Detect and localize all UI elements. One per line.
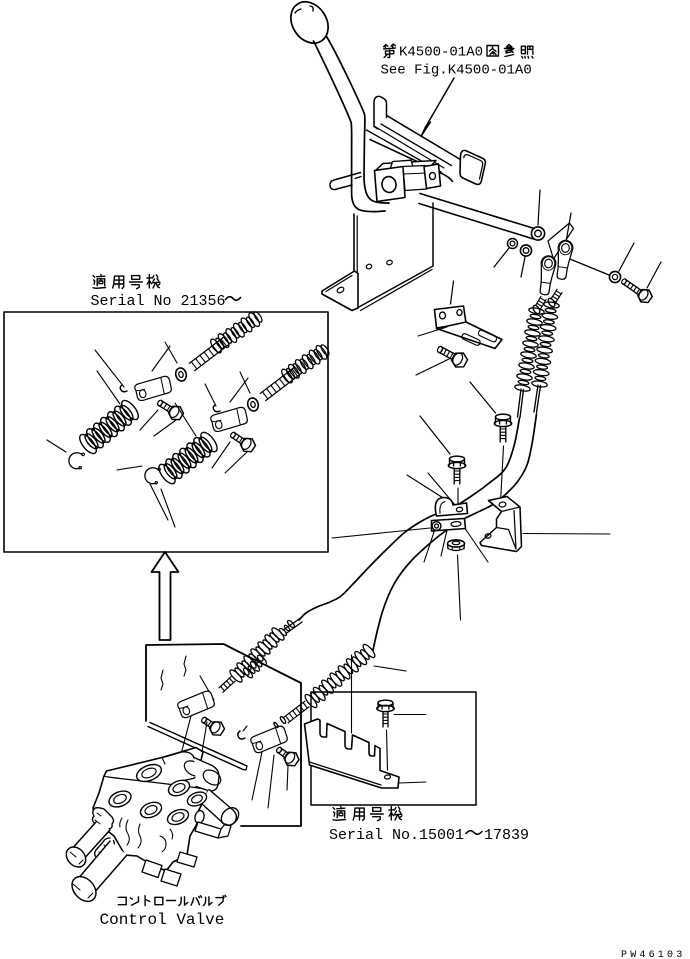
svg-text:K4500-01A0: K4500-01A0 [399, 45, 483, 61]
svg-text:PW46103: PW46103 [621, 950, 685, 959]
svg-text:Control Valve: Control Valve [100, 911, 225, 929]
svg-text:Serial No 21356: Serial No 21356 [91, 293, 226, 310]
svg-text:Serial No.15001: Serial No.15001 [329, 827, 464, 844]
svg-text:17839: 17839 [484, 827, 529, 844]
svg-text:See Fig.K4500-01A0: See Fig.K4500-01A0 [381, 63, 532, 79]
